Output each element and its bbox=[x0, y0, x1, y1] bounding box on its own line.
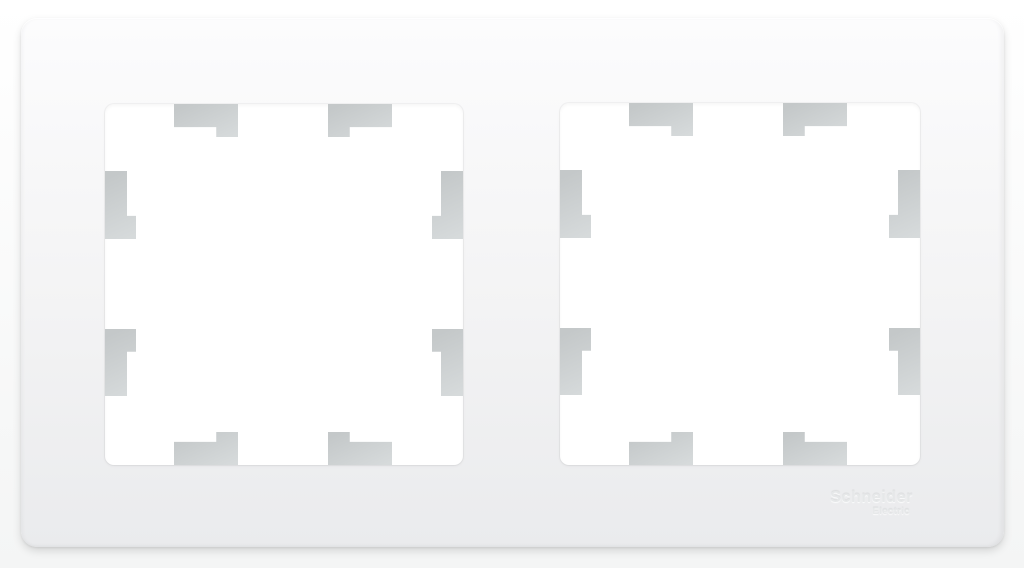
product-photo: Schneider Electric bbox=[0, 0, 1024, 568]
mounting-tab-bottom-right bbox=[783, 432, 847, 465]
mounting-tab-bottom-left bbox=[174, 432, 238, 465]
mounting-tab-bottom-left bbox=[629, 432, 693, 465]
brand-name: Schneider bbox=[830, 490, 913, 506]
opening-right bbox=[560, 103, 920, 465]
mounting-tab-top-right bbox=[783, 103, 847, 136]
brand-sub: Electric bbox=[830, 507, 913, 517]
mounting-tab-bottom-right bbox=[328, 432, 392, 465]
mounting-tab-top-left bbox=[174, 104, 238, 137]
mounting-tab-left-bottom bbox=[105, 329, 136, 396]
brand-logo: Schneider Electric bbox=[830, 490, 913, 517]
mounting-tab-left-bottom bbox=[560, 328, 591, 395]
mounting-tab-right-top bbox=[432, 171, 463, 239]
mounting-tab-top-left bbox=[629, 103, 693, 136]
mounting-tab-left-top bbox=[105, 171, 136, 239]
mounting-tab-left-top bbox=[560, 170, 591, 238]
mounting-tab-right-bottom bbox=[889, 328, 920, 395]
opening-left bbox=[105, 104, 463, 465]
mounting-tab-right-top bbox=[889, 170, 920, 238]
mounting-tab-right-bottom bbox=[432, 329, 463, 396]
frame-plate: Schneider Electric bbox=[21, 18, 1004, 547]
mounting-tab-top-right bbox=[328, 104, 392, 137]
